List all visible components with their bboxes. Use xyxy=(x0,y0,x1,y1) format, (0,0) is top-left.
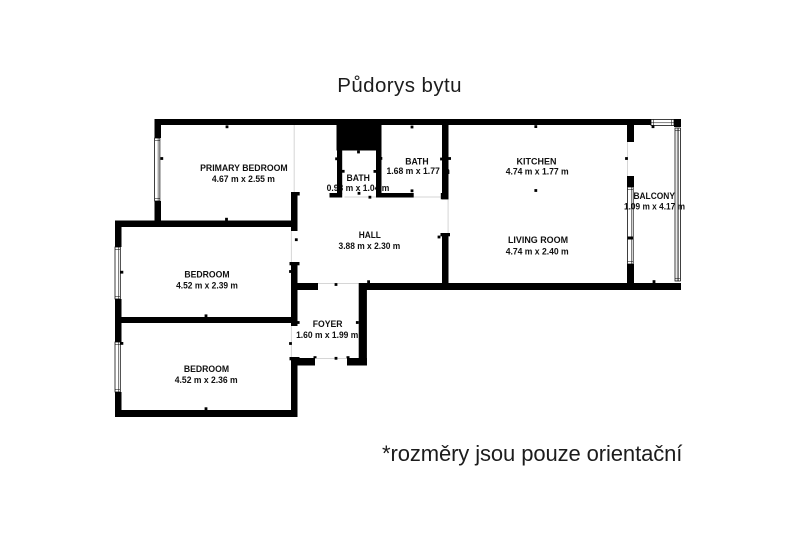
svg-text:1.60 m x 1.99 m: 1.60 m x 1.99 m xyxy=(296,330,358,341)
svg-text:HALL: HALL xyxy=(359,230,381,241)
svg-text:BALCONY: BALCONY xyxy=(633,191,675,202)
svg-text:*rozměry jsou pouze orientační: *rozměry jsou pouze orientační xyxy=(382,441,682,466)
svg-text:4.74 m x 2.40 m: 4.74 m x 2.40 m xyxy=(506,246,569,257)
svg-text:BEDROOM: BEDROOM xyxy=(184,269,229,280)
svg-text:4.52 m x 2.39 m: 4.52 m x 2.39 m xyxy=(176,281,238,292)
svg-text:FOYER: FOYER xyxy=(313,319,343,330)
svg-text:LIVING ROOM: LIVING ROOM xyxy=(508,235,568,246)
svg-text:4.74 m x 1.77 m: 4.74 m x 1.77 m xyxy=(506,167,569,178)
svg-text:BEDROOM: BEDROOM xyxy=(184,364,229,375)
svg-text:1.09 m x 4.17 m: 1.09 m x 4.17 m xyxy=(624,202,685,213)
svg-text:PRIMARY BEDROOM: PRIMARY BEDROOM xyxy=(200,163,288,174)
svg-text:1.68 m x 1.77 m: 1.68 m x 1.77 m xyxy=(386,166,450,177)
svg-text:3.88 m x 2.30 m: 3.88 m x 2.30 m xyxy=(339,241,401,252)
svg-text:4.67 m x 2.55 m: 4.67 m x 2.55 m xyxy=(212,174,275,185)
svg-text:Půdorys bytu: Půdorys bytu xyxy=(337,74,462,97)
svg-text:4.52 m x 2.36 m: 4.52 m x 2.36 m xyxy=(175,375,238,386)
